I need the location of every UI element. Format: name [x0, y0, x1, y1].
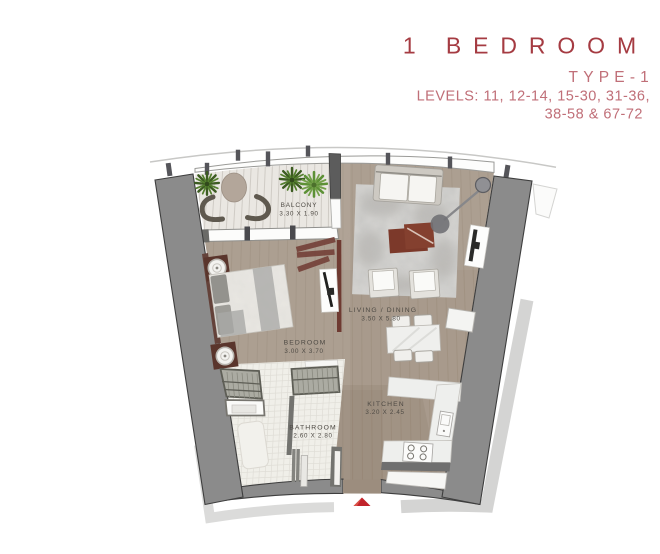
svg-text:BATHROOM: BATHROOM: [289, 425, 337, 432]
svg-text:1 BEDROOM: 1 BEDROOM: [403, 33, 648, 59]
svg-text:TYPE-1: TYPE-1: [569, 69, 654, 86]
svg-text:3.20 X 2.45: 3.20 X 2.45: [365, 409, 404, 416]
svg-text:3.30 X 1.90: 3.30 X 1.90: [279, 211, 318, 218]
svg-text:3.00 X 3.70: 3.00 X 3.70: [284, 348, 323, 355]
svg-text:LIVING / DINING: LIVING / DINING: [349, 307, 417, 314]
svg-text:BEDROOM: BEDROOM: [284, 340, 327, 347]
svg-text:2.60 X 2.80: 2.60 X 2.80: [293, 433, 332, 440]
svg-text:3.50 X 5.80: 3.50 X 5.80: [361, 316, 400, 323]
svg-text:38-58 & 67-72: 38-58 & 67-72: [545, 107, 643, 123]
svg-text:KITCHEN: KITCHEN: [367, 401, 405, 408]
svg-text:BALCONY: BALCONY: [281, 202, 318, 209]
svg-text:LEVELS: 11, 12-14, 15-30, 31-3: LEVELS: 11, 12-14, 15-30, 31-36,: [417, 89, 650, 105]
